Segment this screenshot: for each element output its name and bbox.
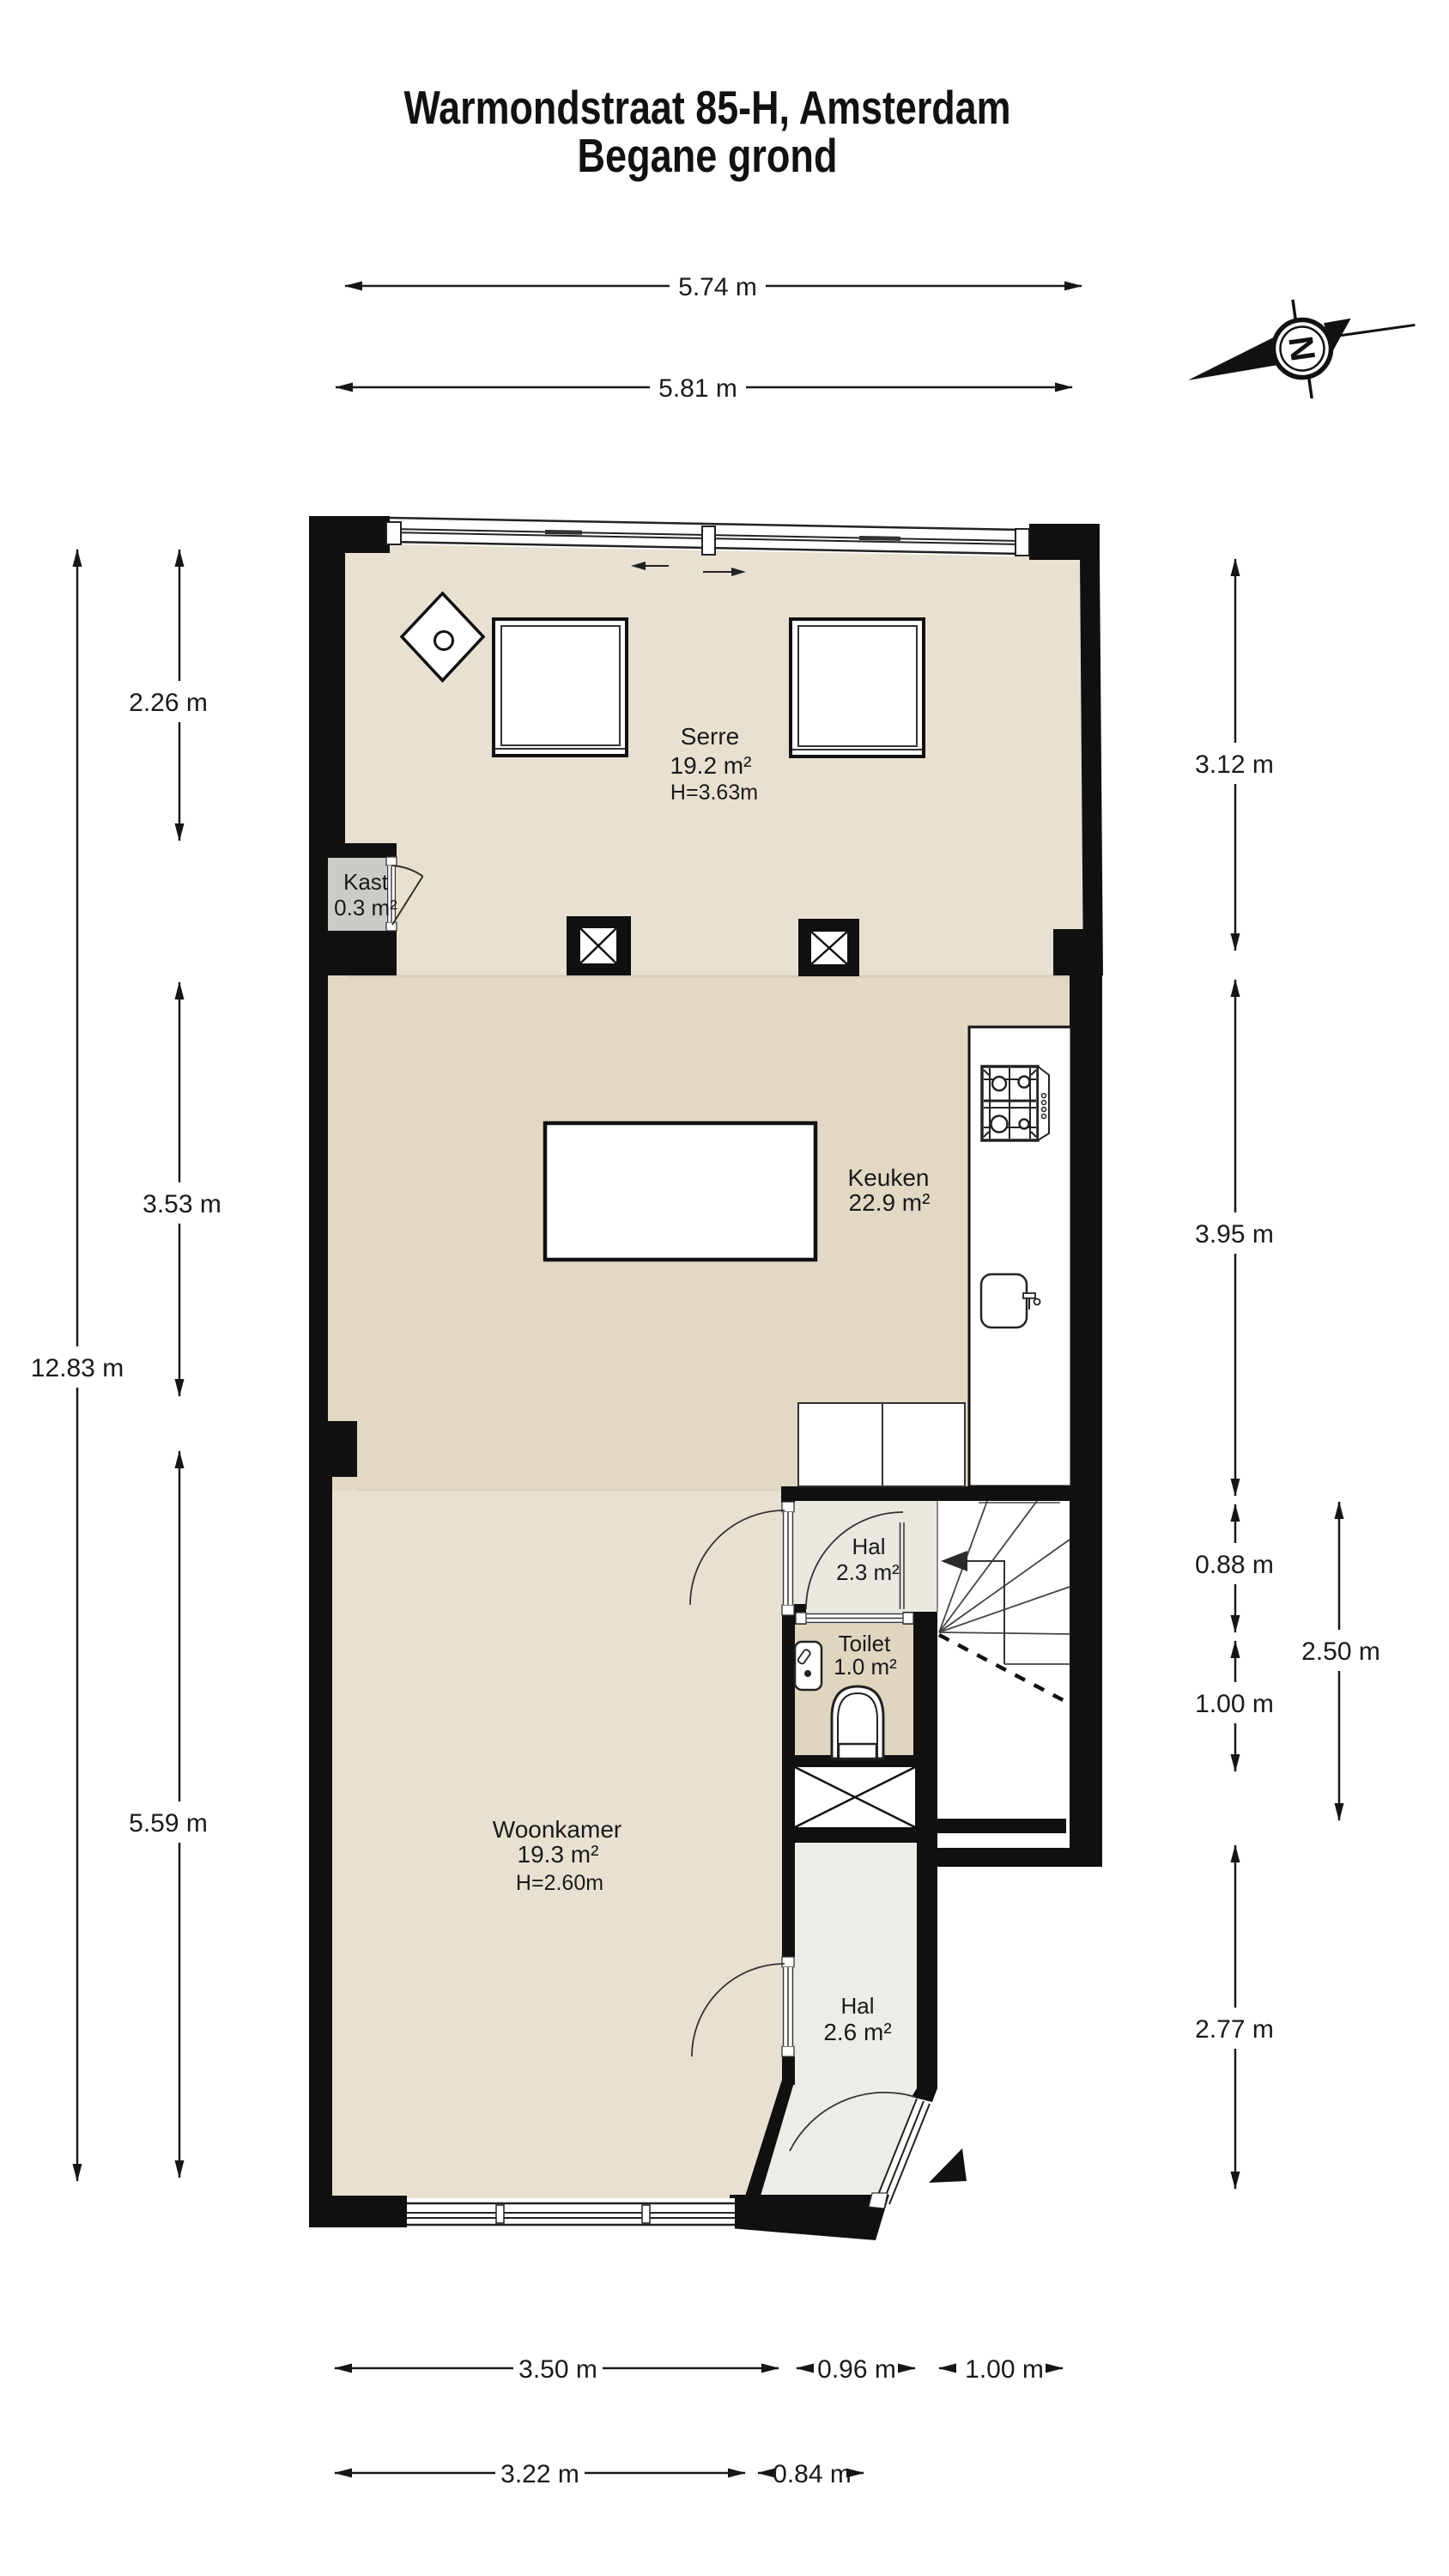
svg-text:Hal: Hal [840,1993,874,2019]
svg-text:0.3 m²: 0.3 m² [334,895,397,920]
svg-text:Kast: Kast [343,869,389,895]
svg-text:3.95 m: 3.95 m [1195,1220,1274,1249]
svg-text:3.53 m: 3.53 m [142,1190,221,1218]
svg-text:Serre: Serre [681,723,739,750]
svg-text:3.12 m: 3.12 m [1195,750,1274,779]
svg-text:5.81 m: 5.81 m [658,374,737,403]
svg-text:H=2.60m: H=2.60m [516,1871,603,1895]
svg-text:Begane grond: Begane grond [578,129,838,182]
svg-text:1.00 m: 1.00 m [965,2355,1044,2384]
svg-text:Keuken: Keuken [848,1164,930,1191]
svg-text:3.22 m: 3.22 m [500,2460,579,2488]
svg-text:22.9 m²: 22.9 m² [849,1189,931,1216]
svg-text:19.2 m²: 19.2 m² [670,752,752,779]
svg-text:Warmondstraat 85-H, Amsterdam: Warmondstraat 85-H, Amsterdam [404,81,1011,134]
svg-text:12.83 m: 12.83 m [31,1354,124,1382]
svg-text:5.74 m: 5.74 m [678,273,757,301]
svg-text:Hal: Hal [852,1534,885,1559]
svg-text:1.0 m²: 1.0 m² [834,1654,897,1680]
svg-text:0.84 m: 0.84 m [773,2460,852,2488]
svg-text:2.26 m: 2.26 m [129,689,208,717]
svg-text:5.59 m: 5.59 m [129,1809,208,1838]
svg-text:H=3.63m: H=3.63m [670,781,758,805]
svg-text:2.6 m²: 2.6 m² [823,2019,891,2045]
svg-text:2.50 m: 2.50 m [1301,1637,1380,1666]
svg-text:Woonkamer: Woonkamer [493,1816,621,1843]
svg-text:19.3 m²: 19.3 m² [518,1841,599,1868]
svg-text:0.96 m: 0.96 m [817,2355,896,2384]
svg-text:N: N [1281,334,1322,364]
svg-text:0.88 m: 0.88 m [1195,1551,1274,1579]
svg-text:2.3 m²: 2.3 m² [836,1559,900,1585]
svg-text:Toilet: Toilet [839,1631,891,1656]
svg-text:1.00 m: 1.00 m [1195,1690,1274,1718]
svg-text:2.77 m: 2.77 m [1195,2015,1274,2044]
svg-text:3.50 m: 3.50 m [518,2355,597,2384]
